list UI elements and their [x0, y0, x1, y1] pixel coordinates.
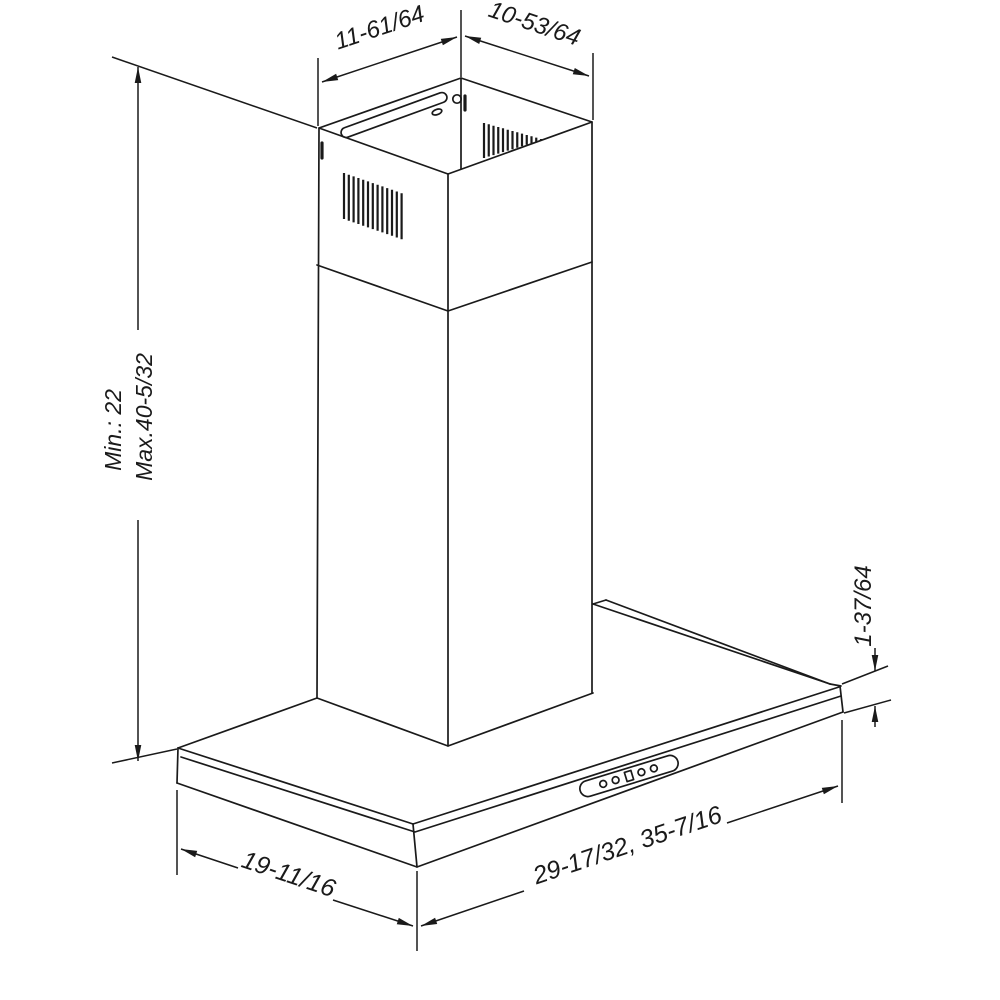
dimension-label-height-max: Max.40-5/32: [131, 353, 157, 481]
extension-line: [844, 700, 891, 713]
extension-line: [112, 57, 317, 128]
control-button-2: [611, 776, 619, 784]
canopy-top-front-left-edge: [178, 748, 413, 824]
canopy-front-corner-edge: [413, 824, 417, 867]
vent-louvers-left-face: [344, 173, 402, 239]
duct-top-rim: [319, 78, 592, 174]
dimension-label-lip-height: 1-37/64: [850, 565, 877, 646]
canopy-right-end-edge: [840, 686, 843, 712]
dimension-duct-depth: 10-53/64: [465, 0, 593, 120]
dimension-duct-width: 11-61/64: [318, 0, 461, 126]
range-hood-dimension-diagram: 11-61/64 10-53/64 Min.: 22 Max.40-5/32 1…: [0, 0, 1000, 1000]
dimension-line-left: [421, 891, 524, 926]
canopy-bevel-edge: [181, 696, 841, 832]
duct-cover: [317, 78, 592, 311]
control-button-4: [650, 764, 658, 772]
canopy-lip-bottom-edge: [177, 712, 843, 867]
canopy-top-front-right-edge: [413, 687, 839, 824]
dimension-overall-height: Min.: 22 Max.40-5/32: [100, 57, 317, 763]
control-button-display: [624, 770, 633, 781]
extension-line: [842, 666, 888, 684]
chimney-left-edge: [317, 128, 319, 698]
dimension-line-left: [181, 849, 238, 868]
hood-canopy: [177, 600, 843, 867]
back-rail-left-cap: [593, 600, 606, 604]
dimension-line-right: [727, 786, 838, 823]
dimension-label-height-min: Min.: 22: [100, 389, 126, 471]
chimney-base-edges: [317, 693, 593, 746]
back-rail-top-edge: [606, 600, 830, 684]
canopy-right-corner-link: [830, 684, 841, 686]
control-button-1: [599, 780, 607, 788]
back-rail-front-edge: [593, 604, 830, 684]
screw-hole: [453, 95, 461, 103]
dimension-line-right: [333, 900, 413, 926]
dimension-label-duct-width: 11-61/64: [331, 0, 428, 55]
dimension-label-duct-depth: 10-53/64: [485, 0, 583, 52]
canopy-left-end-edge: [177, 748, 178, 783]
dimension-label-canopy-depth: 19-11/16: [238, 846, 339, 903]
duct-section-seam: [317, 262, 592, 311]
extension-line: [112, 749, 177, 763]
vent-louvers-right-face-interior: [484, 123, 541, 158]
dimension-label-canopy-width: 29-17/32, 35-7/16: [528, 801, 725, 891]
small-slot: [431, 108, 442, 116]
control-button-3: [637, 768, 645, 776]
dimension-canopy-width: 29-17/32, 35-7/16: [421, 720, 842, 926]
diagram-page: 11-61/64 10-53/64 Min.: 22 Max.40-5/32 1…: [0, 0, 1000, 1000]
dimension-lip-height: 1-37/64: [842, 565, 891, 727]
canopy-top-back-left-edge: [178, 698, 317, 748]
